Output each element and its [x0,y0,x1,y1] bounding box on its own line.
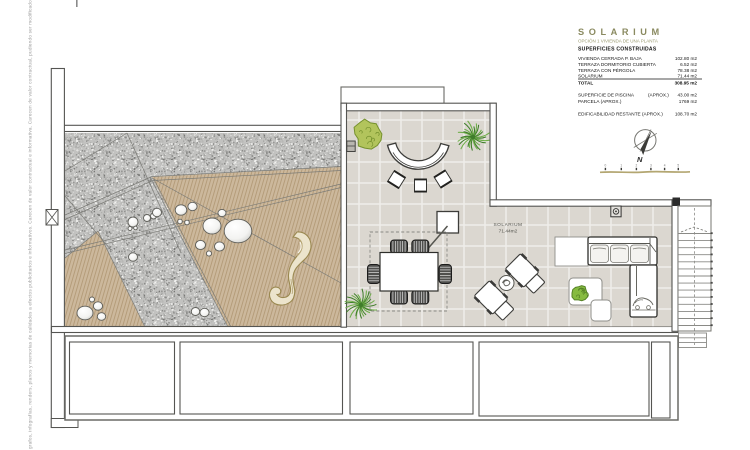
svg-text:EDIFICABILIDAD RESTANTE (APRO: EDIFICABILIDAD RESTANTE (APROX.) [578,112,663,117]
svg-text:SUPERFICIES CONSTRUIDAS: SUPERFICIES CONSTRUIDAS [578,47,657,53]
svg-text:108.70 m2: 108.70 m2 [675,112,698,117]
svg-text:SOLARIUM: SOLARIUM [493,222,522,228]
svg-text:SUPERFICIE DE PISCINA: SUPERFICIE DE PISCINA [578,93,635,98]
svg-text:TERRAZA DORMITORIO CUBIERTA: TERRAZA DORMITORIO CUBIERTA [578,62,657,67]
svg-text:0: 0 [605,164,607,168]
svg-text:4: 4 [664,164,666,168]
svg-text:2: 2 [636,164,638,168]
svg-text:6.52 m2: 6.52 m2 [680,62,697,67]
svg-text:(APROX.): (APROX.) [648,93,669,98]
svg-text:5: 5 [677,164,679,168]
svg-text:1769 m2: 1769 m2 [679,99,698,104]
svg-text:VIVIENDA CERRADA P. BAJA: VIVIENDA CERRADA P. BAJA [578,56,643,61]
svg-text:43.00 m2: 43.00 m2 [677,93,697,98]
svg-text:SOLARIUM: SOLARIUM [578,27,664,37]
svg-text:71.44m2: 71.44m2 [499,229,518,235]
svg-text:OPCIÓN 1 VIVIENDA DE UNA PLANT: OPCIÓN 1 VIVIENDA DE UNA PLANTA [578,38,658,44]
svg-text:71.44 m2: 71.44 m2 [677,74,697,79]
svg-text:PARCELA (APROX.): PARCELA (APROX.) [578,99,622,104]
svg-text:grafos, infografías, renders,: grafos, infografías, renders, planos y m… [28,0,33,449]
svg-text:TOTAL: TOTAL [578,81,593,86]
svg-text:102.80 m2: 102.80 m2 [675,56,698,61]
svg-text:308.95 m2: 308.95 m2 [675,81,698,86]
svg-text:1: 1 [620,164,622,168]
svg-text:78.38 m2: 78.38 m2 [677,68,697,73]
svg-text:N: N [637,155,643,164]
svg-text:3: 3 [650,164,652,168]
svg-text:SOLARIUM: SOLARIUM [578,74,603,79]
svg-text:TERRAZA CON PÉRGOLA: TERRAZA CON PÉRGOLA [578,67,636,73]
